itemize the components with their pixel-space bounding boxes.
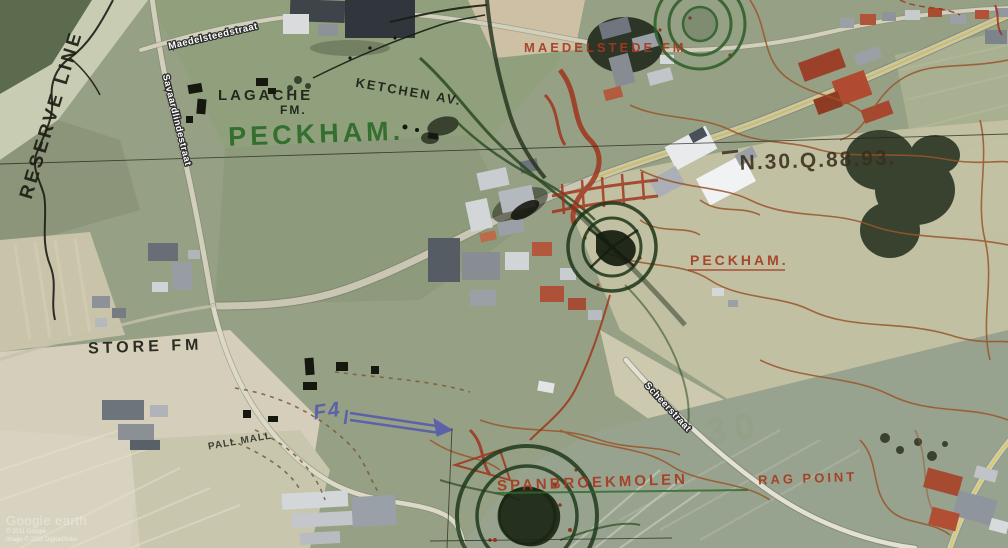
f4-marker-label: F4 [312, 398, 343, 425]
satellite-trench-map: RESERVE LINE LAGACHE FM. KETCHEN AV. PEC… [0, 0, 1008, 548]
map-reference-dash [722, 151, 738, 153]
lagache-farm-label: LAGACHE [218, 87, 313, 104]
maedelstede-farm-label: MAEDELSTEDE FM [524, 40, 687, 55]
peckham-sector-label: PECKHAM. [228, 116, 405, 152]
grid-square-number: 30 [703, 404, 765, 453]
map-canvas[interactable]: RESERVE LINE LAGACHE FM. KETCHEN AV. PEC… [0, 0, 1008, 548]
peckham-red-label: PECKHAM. [690, 252, 789, 268]
lagache-fm-label: FM. [280, 103, 307, 117]
